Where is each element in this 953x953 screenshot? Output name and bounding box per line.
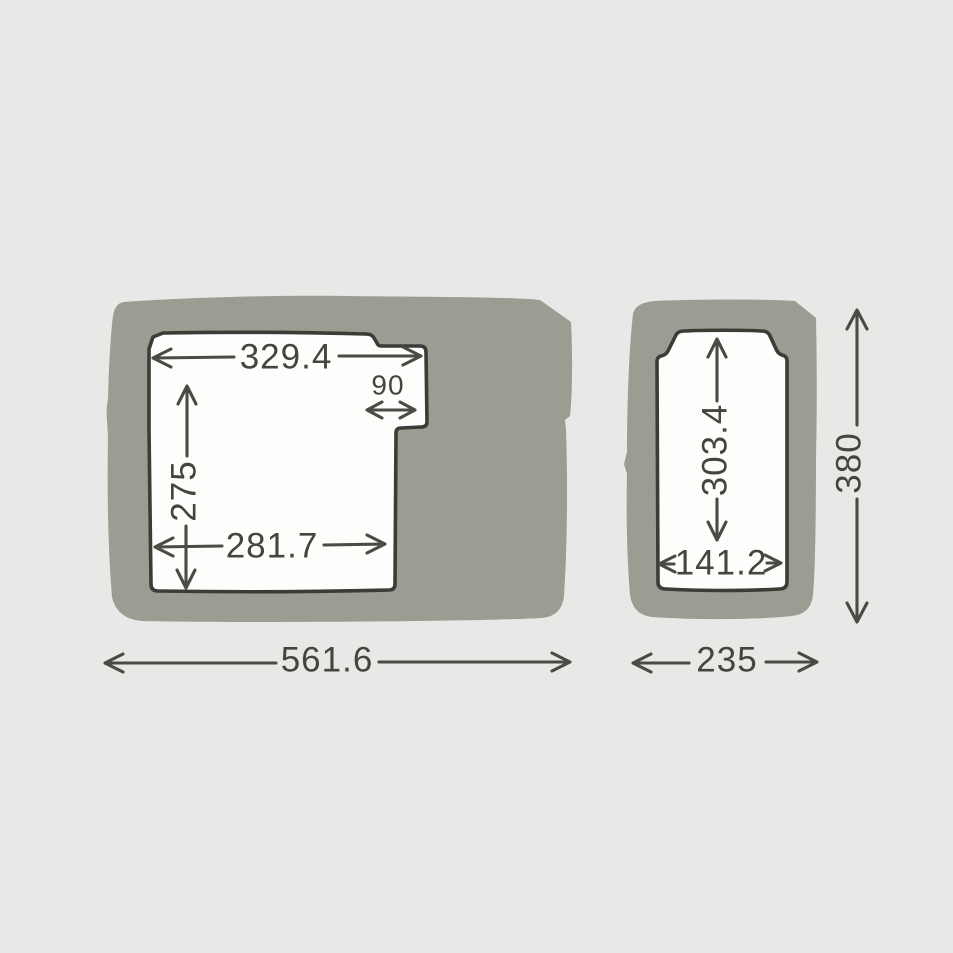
- right-figure: 303.4 141.2 380 235: [624, 300, 869, 680]
- dim-left-overall-width: 561.6: [105, 641, 570, 680]
- left-figure: 329.4 90 275 281.7 561.6: [105, 296, 572, 680]
- dim-label-90: 90: [371, 370, 404, 401]
- dim-label-380: 380: [830, 432, 869, 493]
- product-dimensions-diagram: 329.4 90 275 281.7 561.6: [0, 0, 953, 953]
- dim-right-inner-width: 141.2: [659, 544, 781, 583]
- dim-label-275: 275: [165, 460, 204, 521]
- dim-right-overall-height: 380: [830, 310, 869, 622]
- dim-label-561: 561.6: [281, 641, 374, 680]
- dim-label-303: 303.4: [696, 404, 735, 497]
- dim-label-141: 141.2: [675, 544, 768, 583]
- dim-label-329: 329.4: [240, 338, 333, 377]
- dim-right-overall-width: 235: [633, 641, 817, 680]
- dim-label-235: 235: [696, 641, 757, 680]
- dim-label-281: 281.7: [226, 527, 319, 566]
- diagram-canvas: 329.4 90 275 281.7 561.6: [0, 0, 953, 953]
